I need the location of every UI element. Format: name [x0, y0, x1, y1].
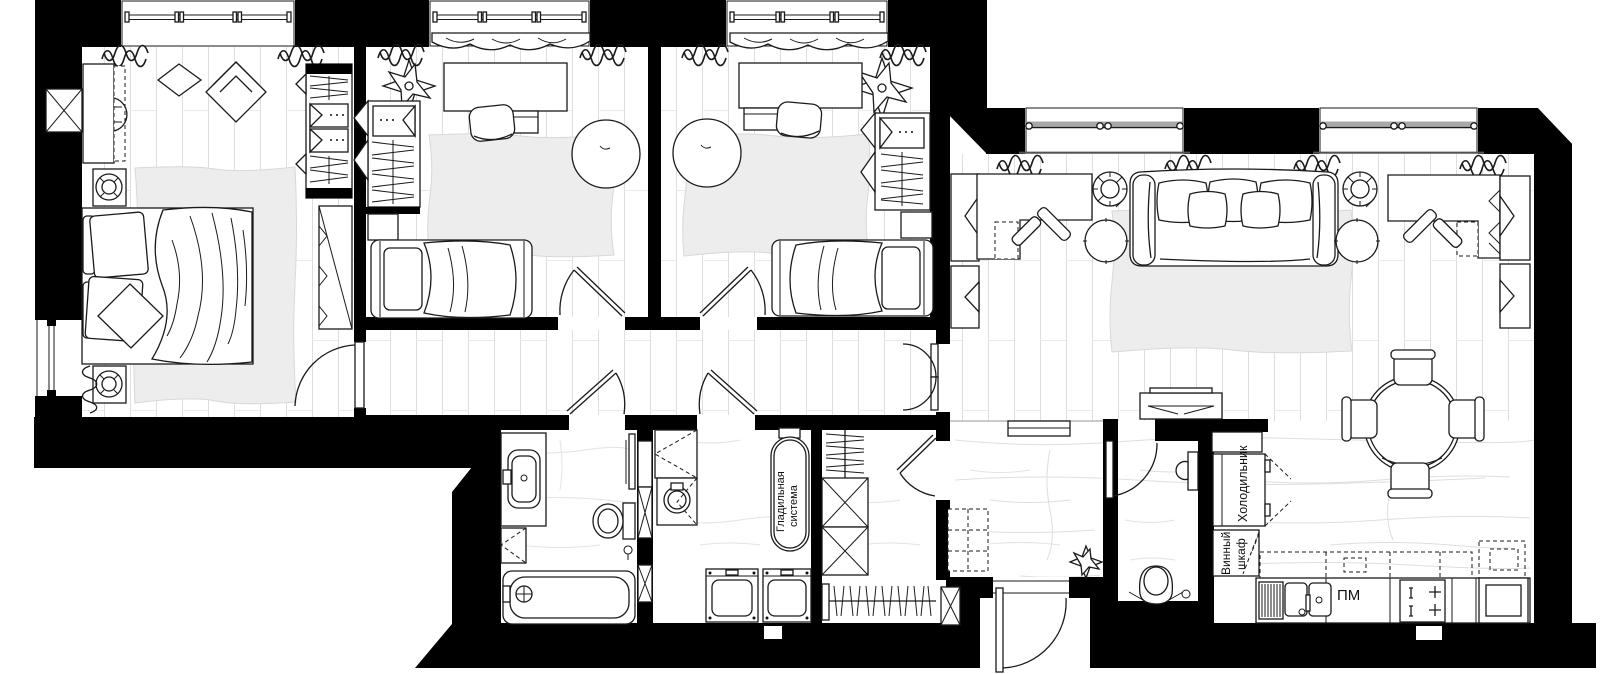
svg-text:шкаф: шкаф — [1234, 538, 1248, 570]
svg-text:Гладильная: Гладильная — [775, 471, 787, 532]
svg-text:Холодильник: Холодильник — [1236, 445, 1250, 522]
svg-text:Винный: Винный — [1219, 532, 1233, 575]
svg-text:ПМ: ПМ — [1337, 587, 1360, 604]
svg-text:система: система — [788, 484, 800, 527]
